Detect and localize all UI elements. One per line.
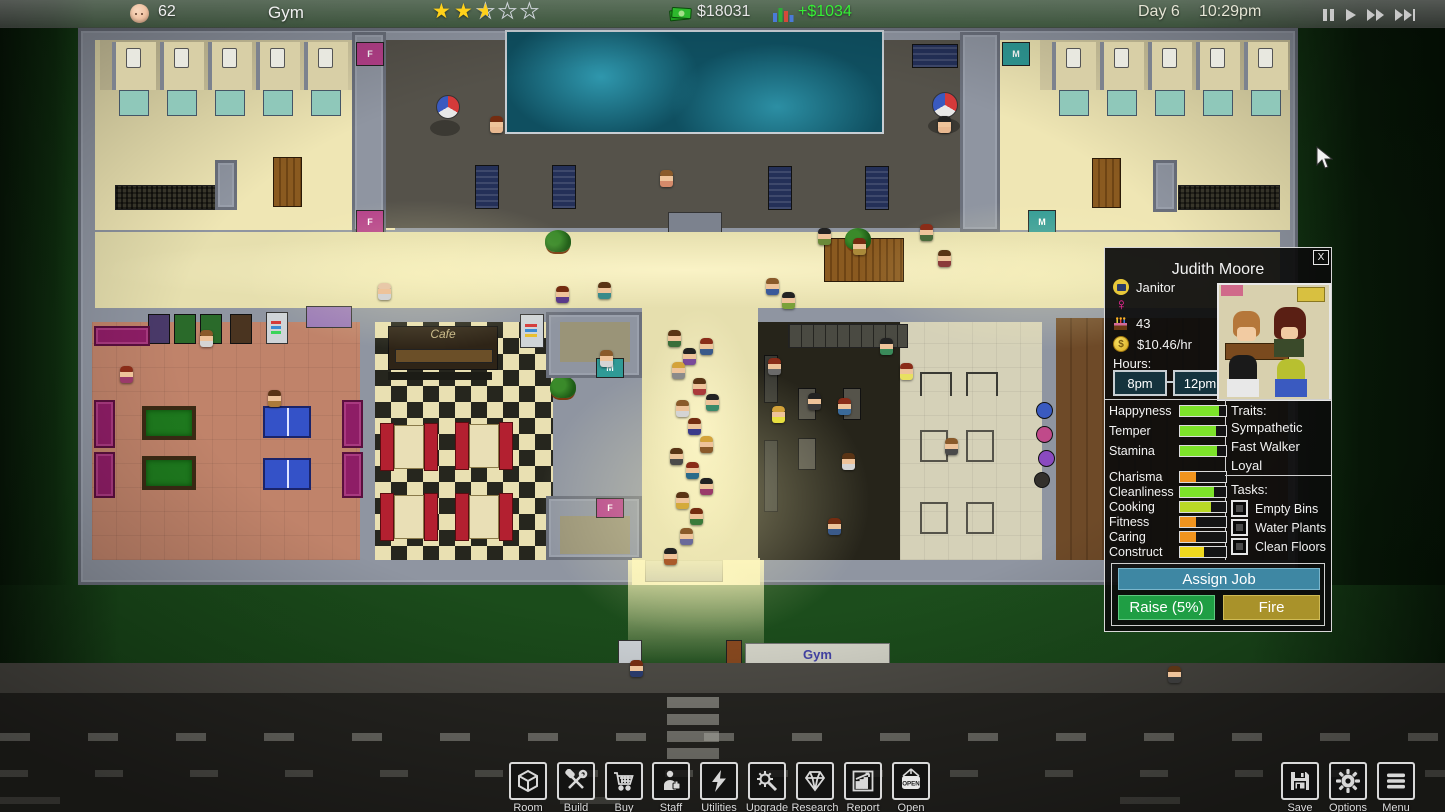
- exercise-ball: [1038, 450, 1055, 467]
- stat-label: Stamina: [1109, 444, 1155, 458]
- task-checkbox[interactable]: [1231, 538, 1248, 555]
- stat-bar: [1179, 486, 1227, 498]
- character[interactable]: [766, 278, 779, 295]
- stat-fill: [1180, 517, 1196, 527]
- hours-dash: [1165, 381, 1173, 383]
- bench: [273, 157, 302, 207]
- gym-machine: [966, 430, 994, 462]
- character-body: [490, 127, 503, 133]
- exercise-ball: [1036, 426, 1053, 443]
- character[interactable]: [120, 366, 133, 383]
- population-icon: [130, 4, 149, 23]
- character[interactable]: [686, 462, 699, 479]
- door-f[interactable]: F: [356, 210, 384, 234]
- pool-lounger: [768, 166, 792, 210]
- stat-bar: [1179, 425, 1227, 437]
- stat-bar: [1179, 531, 1227, 543]
- character[interactable]: [664, 548, 677, 565]
- speed-controls: [1322, 6, 1425, 24]
- gym-title: Gym: [268, 3, 304, 23]
- wc-interior: [560, 516, 630, 554]
- toolbar-label: Room: [504, 802, 552, 812]
- toolbar-options-button[interactable]: Options: [1324, 762, 1372, 812]
- menu-icon: [1377, 762, 1415, 800]
- stall-door[interactable]: [1107, 90, 1137, 116]
- pool-lounger: [865, 166, 889, 210]
- character-body: [630, 671, 643, 677]
- character[interactable]: [945, 438, 958, 455]
- character-body: [766, 289, 779, 295]
- upgrade-icon: [748, 762, 786, 800]
- character-body: [818, 239, 831, 245]
- character[interactable]: [693, 378, 706, 395]
- booth-table: [394, 495, 424, 539]
- character-body: [828, 529, 841, 535]
- stat-label: Temper: [1109, 424, 1151, 438]
- booth-bench: [499, 493, 513, 541]
- pullup-frame: [966, 372, 998, 396]
- toilet: [222, 48, 237, 68]
- booth-bench: [424, 493, 438, 541]
- character[interactable]: [268, 390, 281, 407]
- wage-row: $ $10.46/hr: [1113, 336, 1192, 352]
- character[interactable]: [600, 350, 613, 367]
- character-body: [838, 409, 851, 415]
- character-body: [700, 489, 713, 495]
- toolbar-upgrade-button[interactable]: Upgrade: [743, 762, 791, 812]
- stat-fill: [1180, 472, 1196, 482]
- toolbar-menu-button[interactable]: Menu: [1372, 762, 1420, 812]
- arcade-machine: [174, 314, 196, 344]
- gym-machine: [966, 502, 994, 534]
- character[interactable]: [808, 393, 821, 410]
- lane-markings: [0, 733, 1445, 741]
- assign-job-button[interactable]: Assign Job: [1118, 568, 1320, 590]
- toolbar-staff-button[interactable]: Staff: [647, 762, 695, 812]
- plant: [550, 376, 576, 398]
- day-counter: Day 6: [1138, 3, 1180, 21]
- toilet: [1114, 48, 1129, 68]
- birthday-cake-icon: [1113, 317, 1128, 331]
- character[interactable]: [853, 238, 866, 255]
- stat-label: Charisma: [1109, 470, 1163, 484]
- character[interactable]: [772, 406, 785, 423]
- star-half-fill: ★: [476, 1, 488, 23]
- trait-item: Loyal: [1231, 458, 1262, 473]
- room-icon: [509, 762, 547, 800]
- staff-role: Janitor: [1136, 280, 1175, 295]
- stat-bar: [1179, 405, 1227, 417]
- staff-name: Judith Moore: [1105, 261, 1331, 279]
- booth-bench: [424, 423, 438, 471]
- fire-button[interactable]: Fire: [1223, 595, 1320, 620]
- shower-grate: [1178, 185, 1280, 210]
- coin-icon: $: [1113, 336, 1129, 352]
- cafe-counter: Cafe: [388, 326, 498, 370]
- beach-ball: [436, 95, 460, 119]
- door-m[interactable]: M: [1002, 42, 1030, 66]
- arcade-machine: [230, 314, 252, 344]
- character[interactable]: [842, 453, 855, 470]
- stat-label: Cleanliness: [1109, 485, 1174, 499]
- character-body: [768, 369, 781, 375]
- stat-label: Happyness: [1109, 404, 1172, 418]
- character-body: [672, 373, 685, 379]
- pool-double-door[interactable]: [668, 212, 722, 234]
- toilet: [318, 48, 333, 68]
- star-empty: ★: [498, 1, 520, 23]
- character-body: [668, 341, 681, 347]
- build-icon: [557, 762, 595, 800]
- stat-cooking: Cooking: [1109, 500, 1225, 513]
- pool-lounger: [475, 165, 499, 209]
- character-body: [676, 411, 689, 417]
- character-body: [660, 181, 673, 187]
- exercise-ball: [1034, 472, 1050, 488]
- report-icon: [844, 762, 882, 800]
- magenta-bench: [94, 400, 115, 448]
- character[interactable]: [700, 338, 713, 355]
- traits-label: Traits:: [1231, 403, 1267, 418]
- toilet: [1210, 48, 1225, 68]
- job-icon: [1113, 279, 1129, 295]
- toilet: [174, 48, 189, 68]
- magenta-bench: [342, 452, 363, 498]
- character-body: [772, 417, 785, 423]
- stat-fill: [1180, 502, 1211, 512]
- stall-door[interactable]: [263, 90, 293, 116]
- character[interactable]: [630, 660, 643, 677]
- toolbar-label: Build: [552, 802, 600, 812]
- stat-fitness: Fitness: [1109, 515, 1225, 528]
- character-body: [556, 297, 569, 303]
- toolbar-open-button[interactable]: OPENOpen: [887, 762, 935, 812]
- stat-fill: [1180, 426, 1216, 436]
- character-body: [688, 429, 701, 435]
- magenta-bench: [94, 452, 115, 498]
- swimming-pool: [505, 30, 884, 134]
- shift-start-button[interactable]: 8pm: [1113, 370, 1167, 396]
- umbrella-shadow: [430, 120, 460, 136]
- character[interactable]: [818, 228, 831, 245]
- pool-table: [142, 406, 196, 440]
- character-body: [598, 293, 611, 299]
- arcade-machine: [148, 314, 170, 344]
- character-body: [1168, 677, 1181, 683]
- toolbar-buy-button[interactable]: Buy: [600, 762, 648, 812]
- task-item: Clean Floors: [1231, 538, 1326, 555]
- stat-label: Caring: [1109, 530, 1146, 544]
- stat-fill: [1180, 532, 1196, 542]
- toolbar-label: Research: [791, 802, 839, 812]
- character[interactable]: [690, 508, 703, 525]
- magenta-bench: [342, 400, 363, 448]
- gym-machine: [920, 430, 948, 462]
- character-body: [842, 464, 855, 470]
- stat-label: Cooking: [1109, 500, 1155, 514]
- task-label: Water Plants: [1255, 521, 1326, 535]
- stat-fill: [1180, 446, 1217, 456]
- character[interactable]: [490, 116, 503, 133]
- money-value: $18031: [697, 3, 750, 21]
- vending-machine: [266, 312, 288, 344]
- staff-age: 43: [1136, 316, 1150, 331]
- character[interactable]: [668, 330, 681, 347]
- character-body: [706, 405, 719, 411]
- task-label: Clean Floors: [1255, 540, 1326, 554]
- wall: [960, 32, 1000, 232]
- stall-door[interactable]: [1203, 90, 1233, 116]
- ping-pong-table: [263, 406, 311, 438]
- toolbar-label: Report: [839, 802, 887, 812]
- booth-bench: [455, 493, 469, 541]
- clock: 10:29pm: [1199, 3, 1261, 21]
- stat-bar: [1179, 546, 1227, 558]
- character[interactable]: [782, 292, 795, 309]
- booth-table: [469, 424, 499, 468]
- stall-door[interactable]: [1155, 90, 1185, 116]
- stall-door[interactable]: [167, 90, 197, 116]
- character[interactable]: [672, 362, 685, 379]
- stat-temper: Temper: [1109, 424, 1225, 437]
- weight-rack: [764, 440, 778, 512]
- stat-bar: [1179, 501, 1227, 513]
- character-body: [680, 539, 693, 545]
- income-chart-icon: [772, 5, 794, 22]
- wall-stub: [1153, 160, 1177, 212]
- bench: [1092, 158, 1121, 208]
- crosswalk-stripe: [667, 748, 719, 759]
- stall-door[interactable]: [1059, 90, 1089, 116]
- stat-bar: [1179, 471, 1227, 483]
- toilet: [1258, 48, 1273, 68]
- character-body: [693, 389, 706, 395]
- toolbar-label: Upgrade: [743, 802, 791, 812]
- star-full: ★: [432, 1, 454, 23]
- toolbar-report-button[interactable]: Report: [839, 762, 887, 812]
- money-icon: [668, 5, 692, 22]
- toolbar-label: Buy: [600, 802, 648, 812]
- counter-mat: [388, 372, 492, 380]
- character[interactable]: [378, 283, 391, 300]
- stat-cleanliness: Cleanliness: [1109, 485, 1225, 498]
- stat-stamina: Stamina: [1109, 444, 1225, 457]
- toolbar-label: Open: [887, 802, 935, 812]
- booth-bench: [455, 422, 469, 470]
- weight-bench: [798, 438, 816, 470]
- toolbar-research-button[interactable]: Research: [791, 762, 839, 812]
- door-m[interactable]: M: [1028, 210, 1056, 234]
- character[interactable]: [688, 418, 701, 435]
- stat-construct: Construct: [1109, 545, 1225, 558]
- task-label: Empty Bins: [1255, 502, 1318, 516]
- booth-table: [394, 425, 424, 469]
- shower-grate: [115, 185, 217, 210]
- task-checkbox[interactable]: [1231, 519, 1248, 536]
- game-room-door[interactable]: [306, 306, 352, 328]
- exercise-ball: [1036, 402, 1053, 419]
- entrance-double-door[interactable]: [645, 560, 723, 582]
- character-body: [700, 447, 713, 453]
- toolbar-build-button[interactable]: Build: [552, 762, 600, 812]
- pool-lounger: [912, 44, 958, 68]
- toilet: [1162, 48, 1177, 68]
- stat-label: Construct: [1109, 545, 1163, 559]
- staff-icon: [652, 762, 690, 800]
- booth-bench: [499, 422, 513, 470]
- buy-icon: [605, 762, 643, 800]
- character-body: [880, 349, 893, 355]
- income-value: +$1034: [798, 3, 852, 21]
- task-checkbox[interactable]: [1231, 500, 1248, 517]
- trait-item: Sympathetic: [1231, 420, 1303, 435]
- trait-item: Fast Walker: [1231, 439, 1300, 454]
- booth-table: [469, 495, 499, 539]
- population-count: 62: [158, 3, 176, 21]
- door-f[interactable]: F: [356, 42, 384, 66]
- booth-bench: [380, 493, 394, 541]
- wc-interior: [560, 322, 630, 362]
- character[interactable]: [660, 170, 673, 187]
- character[interactable]: [200, 330, 213, 347]
- character-body: [938, 261, 951, 267]
- toilet: [1066, 48, 1081, 68]
- raise-button[interactable]: Raise (5%): [1118, 595, 1215, 620]
- plant: [545, 230, 571, 252]
- character-body: [938, 127, 951, 133]
- character-body: [200, 341, 213, 347]
- stat-bar: [1179, 445, 1227, 457]
- star-full: ★: [454, 1, 476, 23]
- character-body: [120, 377, 133, 383]
- booth-bench: [380, 423, 394, 471]
- skip-button[interactable]: [1394, 8, 1416, 22]
- character[interactable]: [938, 250, 951, 267]
- character[interactable]: [838, 398, 851, 415]
- character[interactable]: [938, 116, 951, 133]
- crosswalk-stripe: [667, 697, 719, 708]
- role-row: Janitor: [1113, 279, 1175, 295]
- staff-wage: $10.46/hr: [1137, 337, 1192, 352]
- door-f[interactable]: F: [596, 498, 624, 518]
- character[interactable]: [900, 363, 913, 380]
- character-body: [670, 459, 683, 465]
- stat-fill: [1180, 406, 1219, 416]
- character[interactable]: [556, 286, 569, 303]
- stat-bar: [1179, 516, 1227, 528]
- toolbar-label: Utilities: [695, 802, 743, 812]
- options-icon: [1329, 762, 1367, 800]
- character[interactable]: [920, 224, 933, 241]
- character[interactable]: [676, 400, 689, 417]
- toolbar-room-button[interactable]: Room: [504, 762, 552, 812]
- counter-front: [395, 349, 493, 363]
- stall-door[interactable]: [119, 90, 149, 116]
- character-body: [686, 473, 699, 479]
- play-button[interactable]: [1344, 8, 1357, 22]
- staff-portrait: [1217, 283, 1331, 401]
- character-body: [664, 559, 677, 565]
- character-body: [900, 374, 913, 380]
- toilet: [126, 48, 141, 68]
- fast-forward-button[interactable]: [1366, 8, 1385, 22]
- toolbar-save-button[interactable]: Save: [1276, 762, 1324, 812]
- character-body: [700, 349, 713, 355]
- tasks-label: Tasks:: [1231, 482, 1268, 497]
- svg-text:OPEN: OPEN: [902, 781, 920, 788]
- toolbar-utilities-button[interactable]: Utilities: [695, 762, 743, 812]
- stat-charisma: Charisma: [1109, 470, 1225, 483]
- game-screen: F F M M Cafe M: [0, 0, 1445, 812]
- cafe-sign-text: Cafe: [430, 327, 455, 341]
- character-body: [378, 294, 391, 300]
- character[interactable]: [676, 492, 689, 509]
- crosswalk-stripe: [667, 714, 719, 725]
- character-body: [690, 519, 703, 525]
- magenta-bench: [94, 326, 150, 346]
- corridor: [95, 232, 1280, 308]
- star-half: ★★: [476, 1, 498, 23]
- character[interactable]: [1168, 666, 1181, 683]
- gym-machine: [920, 502, 948, 534]
- toolbar-label: Options: [1324, 802, 1372, 812]
- character[interactable]: [706, 394, 719, 411]
- pool-lounger: [552, 165, 576, 209]
- character[interactable]: [880, 338, 893, 355]
- game-room-floor: [92, 322, 360, 560]
- ping-pong-table: [263, 458, 311, 490]
- character-body: [268, 401, 281, 407]
- character[interactable]: [768, 358, 781, 375]
- stat-fill: [1180, 487, 1214, 497]
- stat-happyness: Happyness: [1109, 404, 1225, 417]
- character[interactable]: [700, 478, 713, 495]
- character-body: [945, 449, 958, 455]
- stall-door[interactable]: [1251, 90, 1281, 116]
- character-body: [808, 404, 821, 410]
- pause-button[interactable]: [1322, 8, 1335, 22]
- stall-door[interactable]: [311, 90, 341, 116]
- mouse-cursor: [1316, 146, 1333, 170]
- character-body: [782, 303, 795, 309]
- stat-fill: [1180, 547, 1204, 557]
- character-body: [920, 235, 933, 241]
- staff-info-panel: X Judith Moore Janitor ♀ 43 $ $10.46/hr: [1104, 247, 1332, 632]
- task-item: Empty Bins: [1231, 500, 1318, 517]
- stat-caring: Caring: [1109, 530, 1225, 543]
- character-body: [600, 361, 613, 367]
- character[interactable]: [828, 518, 841, 535]
- stall-door[interactable]: [215, 90, 245, 116]
- character[interactable]: [670, 448, 683, 465]
- gym-sign-text: Gym: [803, 647, 832, 662]
- utilities-icon: [700, 762, 738, 800]
- task-item: Water Plants: [1231, 519, 1326, 536]
- stat-label: Fitness: [1109, 515, 1149, 529]
- toilet: [270, 48, 285, 68]
- character[interactable]: [598, 282, 611, 299]
- research-icon: [796, 762, 834, 800]
- toolbar-label: Menu: [1372, 802, 1420, 812]
- vending-machine: [520, 314, 544, 348]
- character[interactable]: [680, 528, 693, 545]
- beach-ball: [932, 92, 958, 118]
- pool-table: [142, 456, 196, 490]
- top-hud-bar: 62 Gym ★★★★★★ $18031 +$1034 Day 6 10:29p…: [0, 0, 1445, 28]
- hours-label: Hours:: [1113, 356, 1151, 371]
- character-body: [676, 503, 689, 509]
- character[interactable]: [700, 436, 713, 453]
